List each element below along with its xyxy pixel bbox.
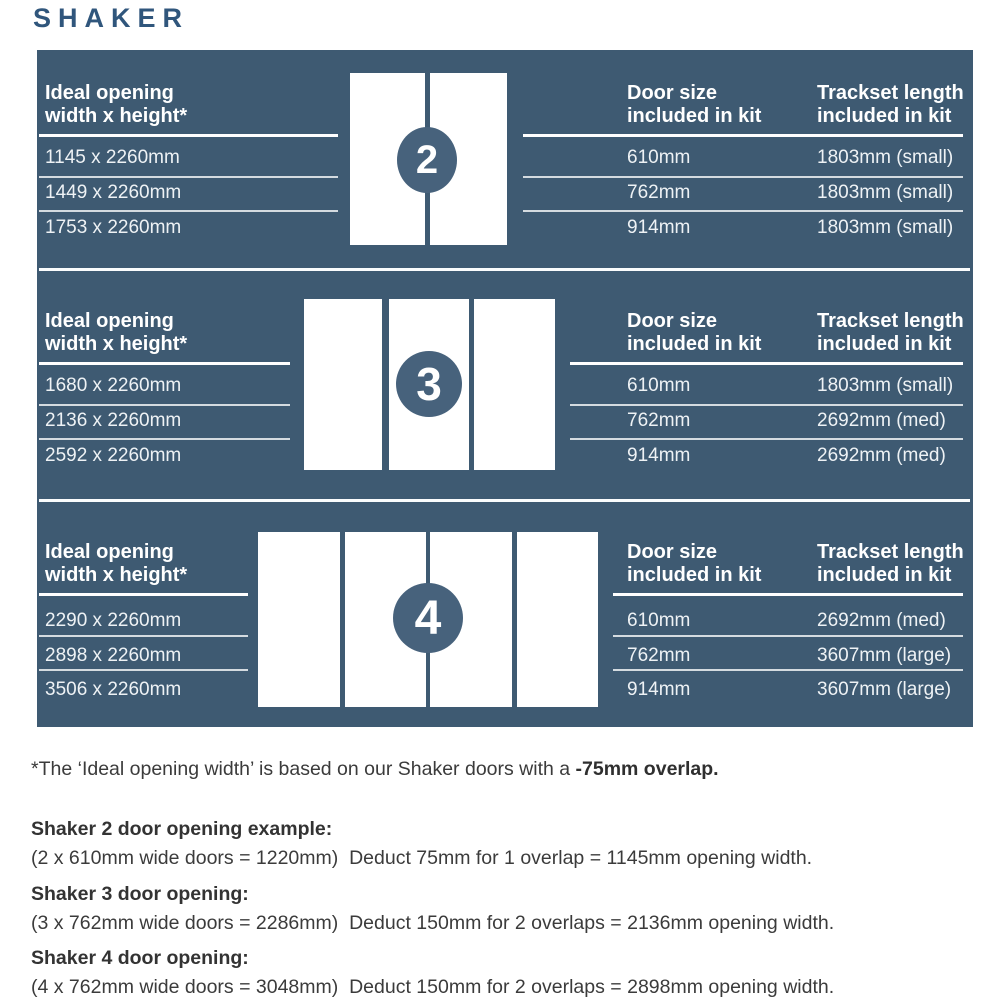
example-3-door-body: (3 x 762mm wide doors = 2286mm) Deduct 1… — [31, 912, 834, 935]
door-size-header: Door size included in kit — [627, 541, 761, 587]
door-panel — [517, 532, 598, 707]
example-2-door-heading: Shaker 2 door opening example: — [31, 818, 332, 841]
trackset-value: 1803mm (small) — [817, 376, 953, 396]
header-underline — [523, 134, 963, 137]
trackset-header: Trackset length included in kit — [817, 541, 964, 587]
ideal-opening-value: 2592 x 2260mm — [45, 446, 181, 466]
door-size-value: 610mm — [627, 148, 690, 168]
door-count-badge: 2 — [397, 127, 457, 193]
ideal-opening-header: Ideal opening width x height* — [45, 82, 187, 128]
section-divider — [39, 268, 970, 271]
row-separator — [570, 404, 963, 406]
ideal-opening-header: Ideal opening width x height* — [45, 541, 187, 587]
row-separator — [39, 404, 290, 406]
row-separator — [570, 438, 963, 440]
trackset-value: 2692mm (med) — [817, 446, 946, 466]
trackset-value: 2692mm (med) — [817, 611, 946, 631]
door-panel — [258, 532, 340, 707]
example-2-door-body: (2 x 610mm wide doors = 1220mm) Deduct 7… — [31, 847, 812, 870]
row-separator — [523, 176, 963, 178]
row-separator — [613, 635, 963, 637]
door-size-value: 610mm — [627, 611, 690, 631]
header-underline — [39, 362, 290, 365]
row-separator — [39, 635, 248, 637]
door-size-value: 914mm — [627, 446, 690, 466]
footnote: *The ‘Ideal opening width’ is based on o… — [31, 758, 719, 781]
example-4-door-heading: Shaker 4 door opening: — [31, 947, 249, 970]
row-separator — [523, 210, 963, 212]
ideal-opening-value: 1680 x 2260mm — [45, 376, 181, 396]
door-panel — [304, 299, 382, 470]
trackset-value: 1803mm (small) — [817, 183, 953, 203]
door-size-header: Door size included in kit — [627, 82, 761, 128]
trackset-value: 1803mm (small) — [817, 148, 953, 168]
footnote-text: *The ‘Ideal opening width’ is based on o… — [31, 758, 576, 780]
trackset-value: 3607mm (large) — [817, 646, 951, 666]
door-size-value: 914mm — [627, 680, 690, 700]
door-size-value: 914mm — [627, 218, 690, 238]
page-title: SHAKER — [33, 3, 189, 34]
row-separator — [39, 176, 338, 178]
row-separator — [39, 210, 338, 212]
door-size-value: 762mm — [627, 646, 690, 666]
ideal-opening-value: 2136 x 2260mm — [45, 411, 181, 431]
ideal-opening-value: 1145 x 2260mm — [45, 148, 180, 168]
door-size-value: 610mm — [627, 376, 690, 396]
ideal-opening-header: Ideal opening width x height* — [45, 310, 187, 356]
trackset-header: Trackset length included in kit — [817, 310, 964, 356]
row-separator — [39, 669, 248, 671]
ideal-opening-value: 1449 x 2260mm — [45, 183, 181, 203]
ideal-opening-value: 2898 x 2260mm — [45, 646, 181, 666]
header-underline — [570, 362, 963, 365]
header-underline — [613, 593, 963, 596]
example-4-door-body: (4 x 762mm wide doors = 3048mm) Deduct 1… — [31, 976, 834, 999]
door-count-badge: 3 — [396, 351, 462, 417]
trackset-value: 3607mm (large) — [817, 680, 951, 700]
door-panel — [474, 299, 555, 470]
ideal-opening-value: 2290 x 2260mm — [45, 611, 181, 631]
trackset-header: Trackset length included in kit — [817, 82, 964, 128]
row-separator — [613, 669, 963, 671]
trackset-value: 2692mm (med) — [817, 411, 946, 431]
ideal-opening-value: 1753 x 2260mm — [45, 218, 181, 238]
door-count-badge: 4 — [393, 583, 463, 653]
door-size-header: Door size included in kit — [627, 310, 761, 356]
header-underline — [39, 134, 338, 137]
door-size-value: 762mm — [627, 183, 690, 203]
door-size-value: 762mm — [627, 411, 690, 431]
example-3-door-heading: Shaker 3 door opening: — [31, 883, 249, 906]
header-underline — [39, 593, 248, 596]
section-divider — [39, 499, 970, 502]
ideal-opening-value: 3506 x 2260mm — [45, 680, 181, 700]
spec-panel: Ideal opening width x height* 1145 x 226… — [37, 50, 973, 727]
row-separator — [39, 438, 290, 440]
trackset-value: 1803mm (small) — [817, 218, 953, 238]
footnote-bold: -75mm overlap. — [576, 758, 719, 780]
